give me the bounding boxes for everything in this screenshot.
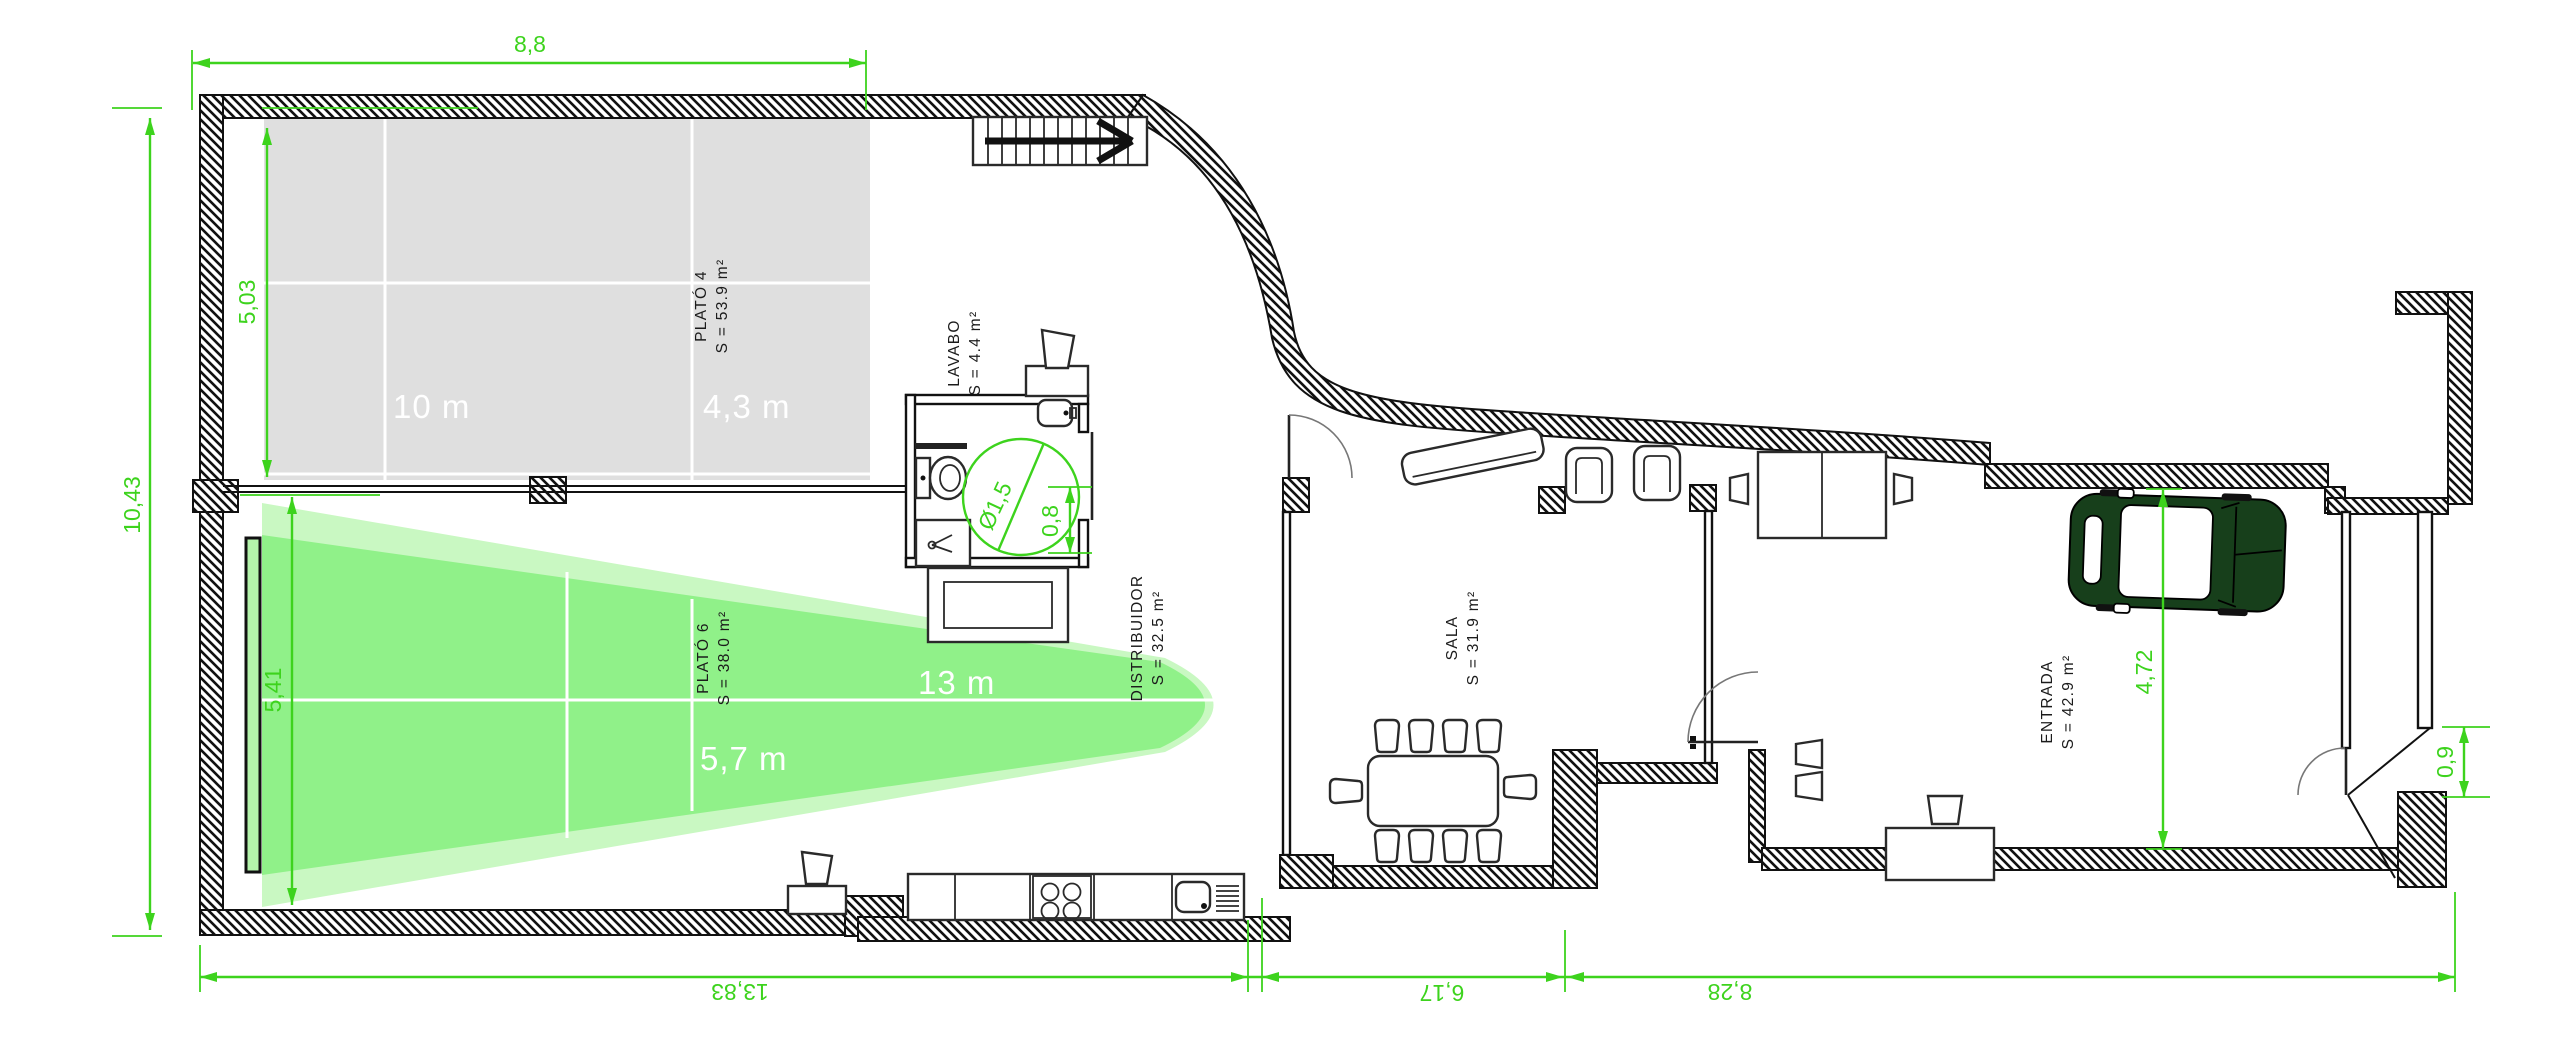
curved-wall: [1128, 95, 1990, 465]
shower-tray: [916, 520, 970, 566]
room-name: PLATÓ 4: [693, 270, 710, 342]
room-name: LAVABO: [946, 319, 963, 387]
projection-screen: [246, 538, 260, 872]
room-name: SALA: [1444, 616, 1461, 661]
table-below-lavabo: [928, 568, 1068, 642]
washbasin: [1038, 400, 1076, 426]
overlay-plato6-width: 5,7 m: [700, 740, 788, 777]
dim-plato4-height: 5,03: [234, 280, 260, 325]
sofa: [1400, 427, 1546, 487]
desk-chair: [1894, 474, 1912, 504]
car-top-view: [2068, 487, 2287, 618]
room-area: S = 42.9 m²: [2060, 655, 2077, 750]
dim-bottom-right: 8,28: [1708, 979, 1753, 1005]
dim-top-width: 8,8: [514, 31, 546, 57]
room-area: S = 38.0 m²: [716, 611, 733, 706]
dim-left-total: 10,43: [119, 476, 145, 534]
dim-entry-door: 0,9: [2432, 746, 2458, 778]
room-name: PLATÓ 6: [695, 622, 712, 694]
dim-bottom-left: 13,83: [711, 979, 769, 1005]
small-desk-and-stool: [788, 852, 846, 914]
room-area: S = 53.9 m²: [714, 259, 731, 354]
room-label-entrada: ENTRADA S = 42.9 m²: [2039, 655, 2077, 750]
distribuidor-door: [1289, 415, 1352, 478]
staircase: [973, 117, 1147, 165]
room-name: ENTRADA: [2039, 660, 2056, 743]
room-name: DISTRIBUIDOR: [1129, 575, 1146, 702]
room-area: S = 31.9 m²: [1465, 591, 1482, 686]
partition: [915, 443, 967, 449]
dining-set: [1330, 720, 1536, 862]
armchair: [1634, 446, 1680, 500]
desk-chair: [1730, 474, 1748, 504]
overlay-plato6-length: 13 m: [918, 664, 995, 701]
room-label-lavabo: LAVABO S = 4.4 m²: [946, 311, 984, 396]
toilet: [916, 457, 966, 499]
overlay-plato4-depth: 4,3 m: [703, 388, 791, 425]
dim-bottom-middle: 6,17: [1420, 980, 1465, 1006]
dim-entrada-height: 4,72: [2131, 650, 2157, 695]
room-area: S = 4.4 m²: [967, 311, 984, 396]
entry-door: [2298, 748, 2346, 795]
room-label-sala: SALA S = 31.9 m²: [1444, 591, 1482, 686]
plato4-stage-area: [264, 117, 870, 480]
floor-plan-canvas: 8,8 5,03 10,43 5,41 4,72 0,8 0,9 Ø1,5 13…: [0, 0, 2560, 1045]
dining-table: [1368, 756, 1498, 826]
kitchen-counter: [908, 874, 1244, 920]
double-desk: [1730, 452, 1912, 538]
floor-plan-drawing: 8,8 5,03 10,43 5,41 4,72 0,8 0,9 Ø1,5 13…: [0, 0, 2560, 1045]
armchair: [1566, 448, 1612, 502]
dim-wc-clearance: 0,8: [1037, 505, 1063, 537]
stool-on-counter: [1026, 330, 1088, 396]
desk-chair: [1928, 796, 1962, 824]
entrada-desk: [1886, 796, 1994, 880]
corridor-door: [1688, 672, 1758, 749]
projection-cone: [246, 503, 1240, 907]
room-area: S = 32.5 m²: [1150, 591, 1167, 686]
dim-plato6-height: 5,41: [260, 668, 286, 713]
dim-turning-circle: Ø1,5: [972, 478, 1017, 534]
overlay-plato4-width: 10 m: [393, 388, 470, 425]
waiting-chairs: [1796, 740, 1822, 800]
